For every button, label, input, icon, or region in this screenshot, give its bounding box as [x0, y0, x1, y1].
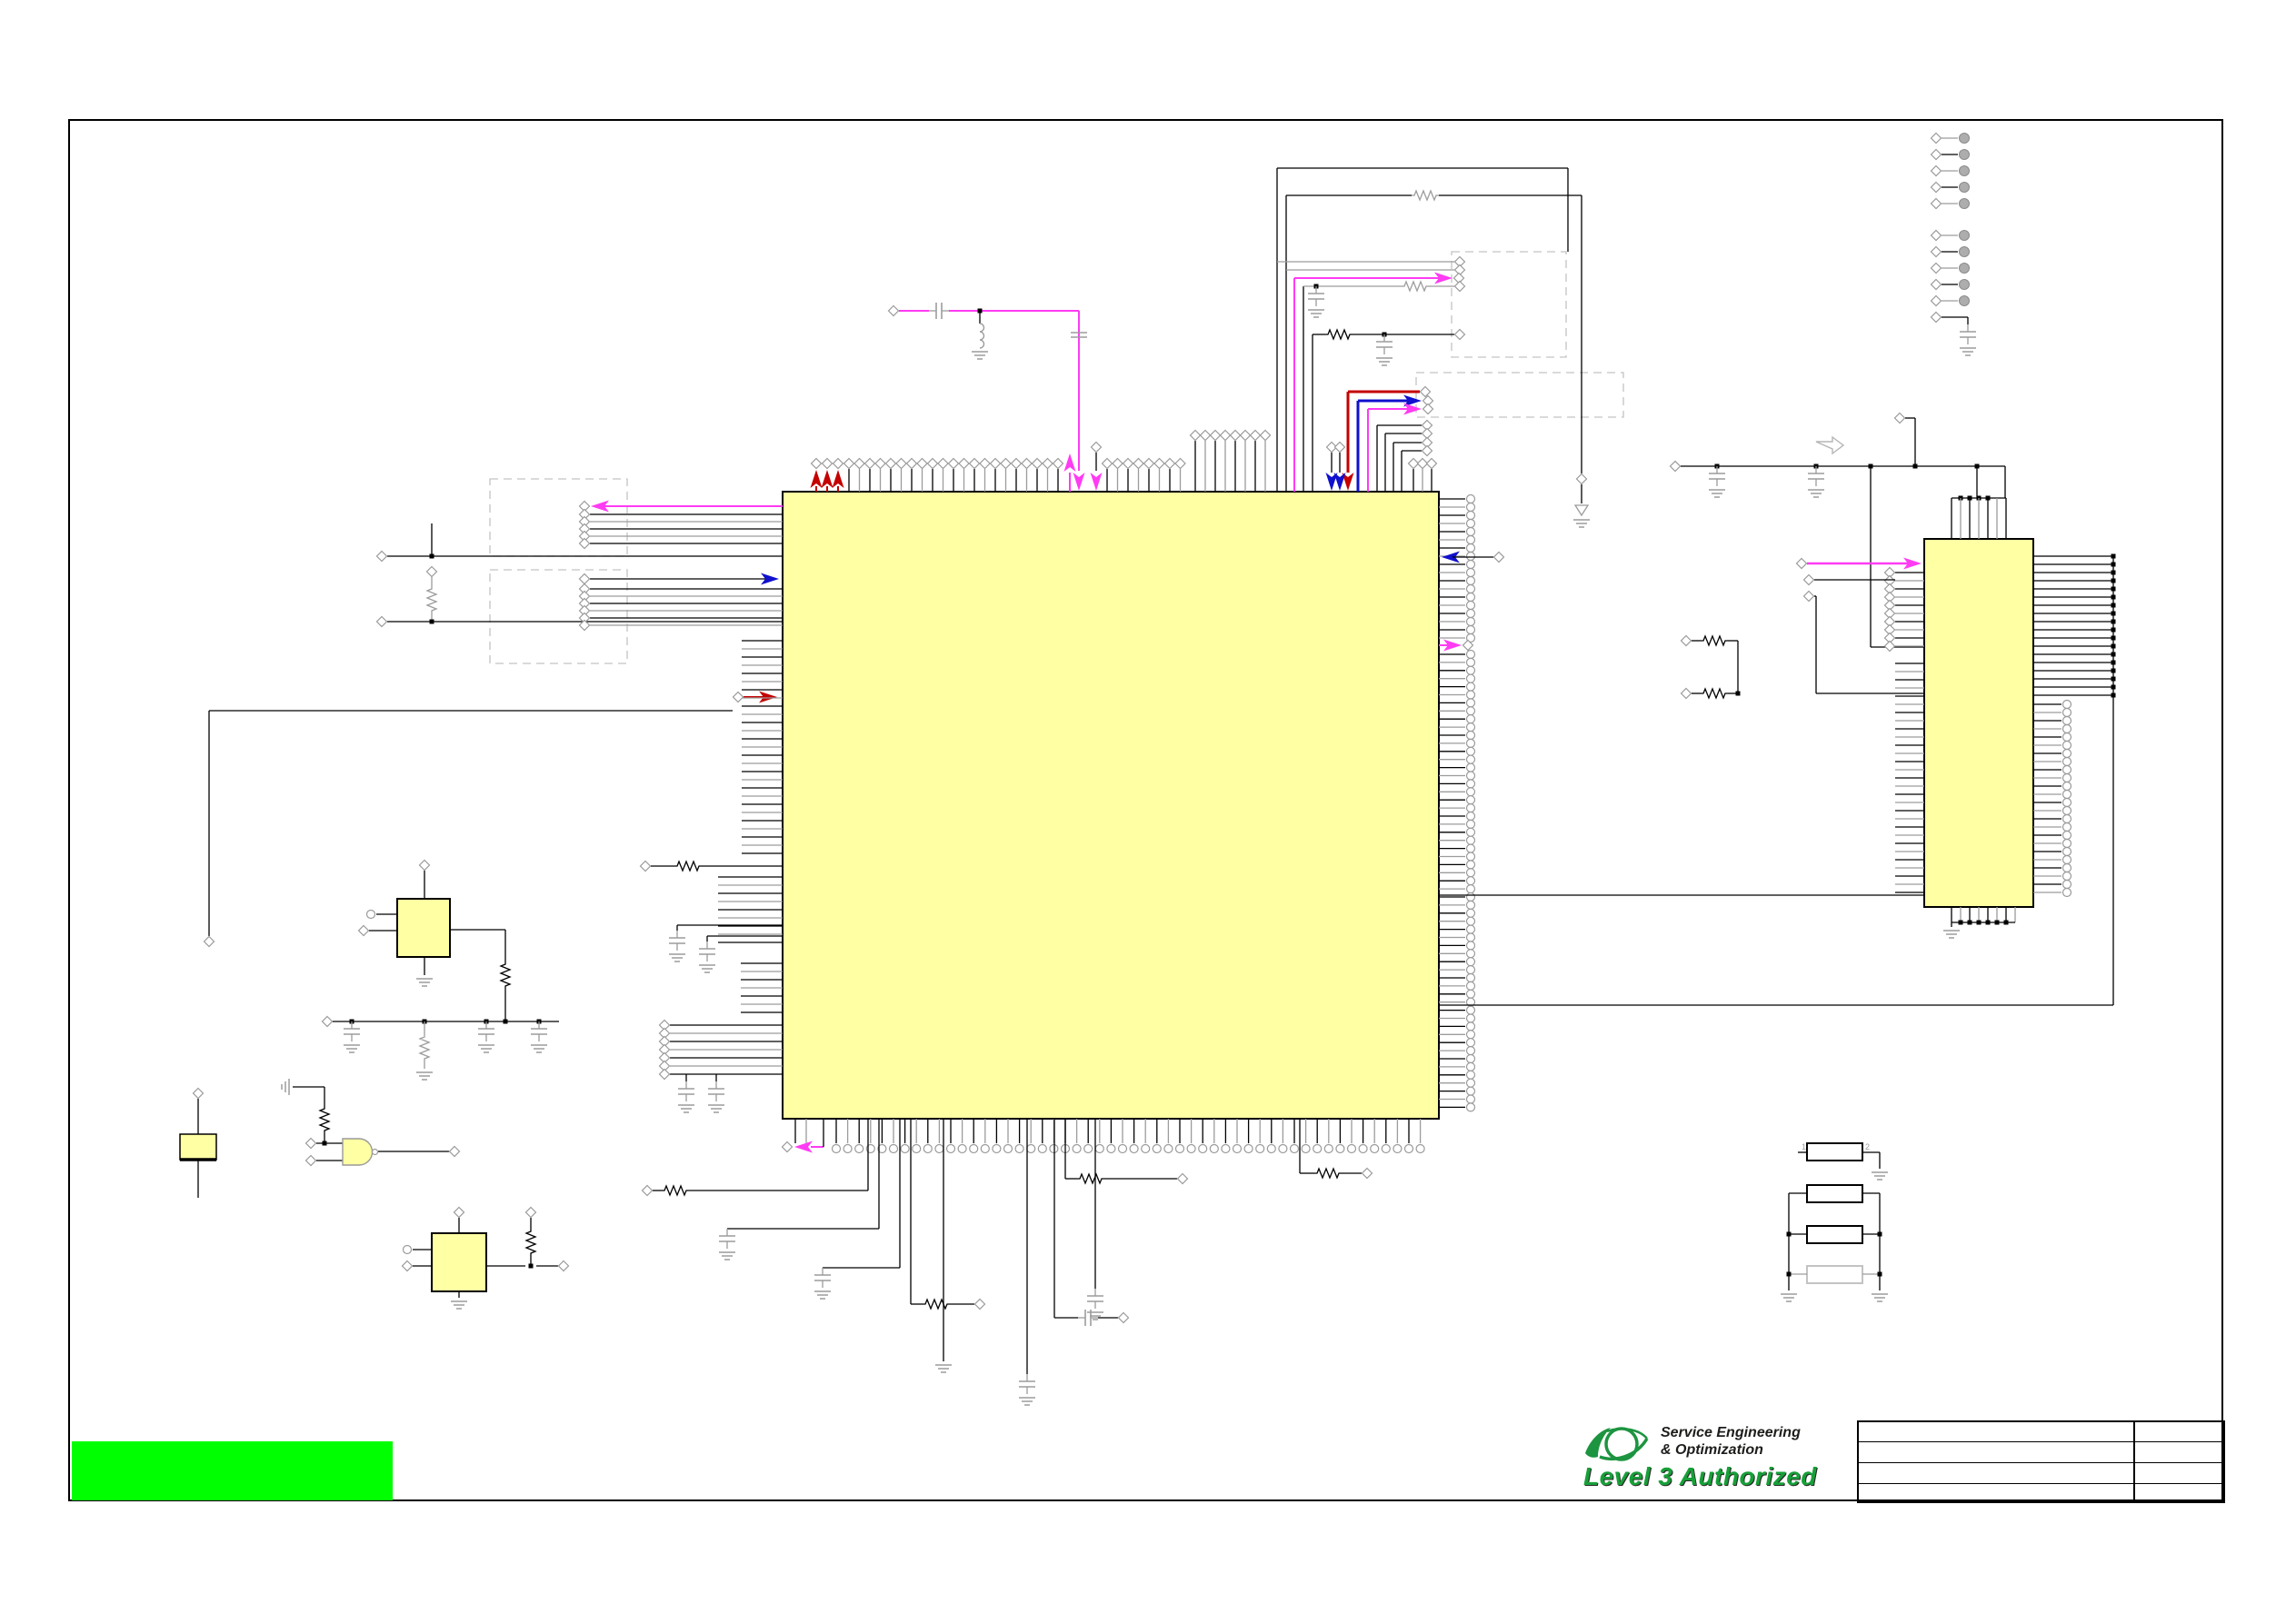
port-diamond-icon — [377, 552, 387, 562]
dashed-group-box — [490, 570, 627, 663]
ground-symbol — [478, 1045, 494, 1052]
junction-dot — [1913, 464, 1918, 469]
regulator-block — [432, 1233, 486, 1291]
port-diamond-icon — [205, 937, 215, 947]
terminal-circle-icon — [2063, 864, 2071, 872]
terminal-circle-icon — [1467, 699, 1475, 707]
terminal-circle-icon — [1164, 1145, 1173, 1153]
terminal-circle-icon — [1004, 1145, 1013, 1153]
oscillator-block — [397, 899, 450, 957]
terminal-circle-icon — [1467, 796, 1475, 804]
test-pad — [1960, 150, 1970, 160]
test-pad — [1960, 264, 1970, 274]
terminal-circle-icon — [947, 1145, 955, 1153]
junction-dot — [2111, 636, 2116, 641]
port-diamond-icon — [1494, 553, 1504, 563]
port-diamond-icon — [660, 1070, 670, 1080]
junction-dot — [2111, 571, 2116, 575]
terminal-circle-icon — [1359, 1145, 1367, 1153]
port-diamond-icon — [1043, 459, 1053, 469]
port-diamond-icon — [1201, 431, 1211, 441]
ground-symbol — [1872, 1172, 1888, 1180]
ground-symbol — [1087, 1312, 1103, 1320]
pin-row — [1191, 431, 1271, 493]
terminal-circle-icon — [901, 1145, 909, 1153]
terminal-circle-icon — [1187, 1145, 1195, 1153]
signal-arrow-icon — [1064, 453, 1076, 472]
terminal-circle-icon — [958, 1145, 966, 1153]
terminal-circle-icon — [2063, 717, 2071, 725]
ground-symbol — [1019, 1398, 1035, 1405]
signal-arrow-icon — [811, 470, 823, 488]
right-ic-block — [1924, 539, 2033, 907]
terminal-circle-icon — [1393, 1145, 1402, 1153]
terminal-circle-icon — [1467, 553, 1475, 561]
terminal-circle-icon — [1467, 618, 1475, 626]
terminal-circle-icon — [1467, 602, 1475, 610]
terminal-circle-icon — [2063, 791, 2071, 799]
test-pad — [1960, 199, 1970, 209]
terminal-circle-icon — [1467, 658, 1475, 666]
capacitor — [669, 931, 685, 951]
junction-dot — [1878, 1272, 1882, 1277]
terminal-circle-icon — [1467, 561, 1475, 569]
port-diamond-icon — [1261, 431, 1271, 441]
terminal-circle-icon — [1467, 1055, 1475, 1063]
terminal-circle-icon — [1467, 836, 1475, 844]
terminal-circle-icon — [1467, 569, 1475, 577]
title-block-row-divider — [1859, 1441, 2223, 1442]
resistor — [1325, 330, 1353, 339]
terminal-circle-icon — [1467, 1031, 1475, 1039]
terminal-circle-icon — [1084, 1145, 1093, 1153]
ground-symbol — [416, 1072, 433, 1080]
terminal-circle-icon — [833, 1145, 841, 1153]
port-diamond-icon — [1123, 459, 1133, 469]
port-diamond-icon — [1175, 459, 1185, 469]
resistor — [1314, 1169, 1342, 1178]
capacitor — [708, 1081, 724, 1101]
terminal-circle-icon — [2063, 872, 2071, 881]
diode-symbol — [1575, 505, 1588, 515]
terminal-circle-icon — [2063, 701, 2071, 709]
terminal-circle-icon — [2063, 840, 2071, 848]
terminal-circle-icon — [1107, 1145, 1115, 1153]
pin-row — [580, 510, 784, 549]
terminal-circle-icon — [2063, 799, 2071, 807]
resistor — [674, 862, 702, 871]
resistor — [923, 1300, 950, 1309]
terminal-circle-icon — [2063, 782, 2071, 791]
terminal-circle-icon — [2063, 889, 2071, 897]
ground-symbol — [719, 1252, 735, 1260]
pin-row — [580, 584, 784, 631]
port-diamond-icon — [1932, 199, 1942, 209]
terminal-circle-icon — [2063, 725, 2071, 733]
junction-dot — [2111, 628, 2116, 633]
pack-resistor — [1807, 1143, 1862, 1161]
terminal-circle-icon — [1467, 593, 1475, 602]
port-diamond-icon — [1133, 459, 1143, 469]
port-diamond-icon — [1455, 282, 1465, 292]
port-diamond-icon — [1144, 459, 1154, 469]
port-diamond-icon — [1455, 330, 1465, 340]
terminal-circle-icon — [993, 1145, 1001, 1153]
test-pad — [1960, 134, 1970, 144]
terminal-circle-icon — [1467, 674, 1475, 682]
port-diamond-icon — [1932, 280, 1942, 290]
capacitor — [1376, 334, 1393, 354]
capacitor — [1709, 466, 1725, 486]
port-diamond-icon — [1251, 431, 1261, 441]
junction-dot — [1995, 921, 2000, 925]
port-diamond-icon — [907, 459, 917, 469]
terminal-circle-icon — [1467, 723, 1475, 732]
terminal-circle-icon — [1313, 1145, 1322, 1153]
terminal-circle-icon — [2063, 807, 2071, 815]
terminal-circle-icon — [1073, 1145, 1081, 1153]
signal-arrow-icon — [1091, 473, 1103, 491]
port-diamond-icon — [1421, 387, 1431, 397]
port-diamond-icon — [1231, 431, 1241, 441]
terminal-circle-icon — [1467, 893, 1475, 902]
capacitor — [1808, 466, 1824, 486]
pin-row — [718, 877, 783, 942]
terminal-circle-icon — [1467, 512, 1475, 520]
ground-symbol — [1308, 310, 1324, 317]
terminal-circle-icon — [1467, 1006, 1475, 1014]
terminal-circle-icon — [1467, 804, 1475, 812]
port-diamond-icon — [643, 1186, 653, 1196]
port-diamond-icon — [1427, 459, 1437, 469]
port-diamond-icon — [823, 459, 833, 469]
terminal-circle-icon — [1130, 1145, 1138, 1153]
junction-dot — [2111, 603, 2116, 608]
pad-row — [1932, 134, 1970, 209]
pin-row — [1409, 459, 1437, 493]
terminal-circle-icon — [1279, 1145, 1287, 1153]
junction-dot — [2111, 587, 2116, 592]
terminal-circle-icon — [367, 911, 375, 919]
capacitor — [1960, 324, 1976, 344]
port-diamond-icon — [1682, 689, 1692, 699]
crystal-block — [180, 1134, 216, 1160]
terminal-circle-icon — [1467, 877, 1475, 885]
terminal-circle-icon — [1467, 772, 1475, 780]
terminal-circle-icon — [1244, 1145, 1253, 1153]
capacitor — [678, 1081, 694, 1101]
junction-dot — [1986, 921, 1991, 925]
port-diamond-icon — [526, 1208, 536, 1218]
port-diamond-icon — [1191, 431, 1201, 441]
bus-row — [2033, 554, 2116, 698]
resistor — [1077, 1174, 1104, 1183]
port-diamond-icon — [949, 459, 959, 469]
port-diamond-icon — [928, 459, 938, 469]
port-diamond-icon — [1113, 459, 1123, 469]
terminal-circle-icon — [981, 1145, 989, 1153]
terminal-circle-icon — [1467, 974, 1475, 982]
inductor-coil — [980, 324, 984, 348]
port-diamond-icon — [323, 1017, 333, 1027]
junction-dot — [2111, 554, 2116, 559]
port-diamond-icon — [377, 617, 387, 627]
terminal-circle-icon — [1467, 520, 1475, 528]
terminal-circle-icon — [1467, 1014, 1475, 1022]
terminal-circle-icon — [1336, 1145, 1344, 1153]
port-diamond-icon — [886, 459, 896, 469]
port-diamond-icon — [1178, 1174, 1188, 1184]
resistor — [1701, 636, 1728, 645]
terminal-circle-icon — [1467, 852, 1475, 861]
terminal-circle-icon — [1467, 707, 1475, 715]
junction-dot — [2111, 685, 2116, 690]
terminal-circle-icon — [1467, 933, 1475, 942]
terminal-circle-icon — [1467, 950, 1475, 958]
capacitor — [1308, 286, 1324, 306]
logo-line3: Level 3 Authorized — [1583, 1462, 1817, 1491]
junction-dot — [1878, 1232, 1882, 1237]
test-pad — [1960, 231, 1970, 241]
port-diamond-icon — [1797, 559, 1807, 569]
pin-row — [1439, 651, 1475, 1111]
terminal-circle-icon — [1467, 861, 1475, 869]
junction-dot — [2111, 620, 2116, 624]
terminal-circle-icon — [2063, 709, 2071, 717]
port-diamond-icon — [917, 459, 927, 469]
terminal-circle-icon — [2063, 733, 2071, 742]
ground-symbol — [699, 965, 715, 972]
junction-dot — [2004, 921, 2009, 925]
pin-row — [1439, 495, 1475, 643]
junction-dot — [2111, 653, 2116, 657]
junction-dot — [1968, 921, 1972, 925]
terminal-circle-icon — [1038, 1145, 1046, 1153]
ground-symbol — [416, 979, 433, 986]
port-diamond-icon — [1335, 443, 1345, 453]
terminal-circle-icon — [1467, 844, 1475, 852]
central-ic-block — [783, 492, 1439, 1119]
capacitor — [1019, 1374, 1035, 1394]
port-diamond-icon — [1804, 575, 1814, 585]
capacitor — [814, 1268, 831, 1288]
nand-gate — [343, 1139, 378, 1165]
junction-dot — [1787, 1272, 1792, 1277]
test-pad — [1960, 247, 1970, 257]
resistor — [420, 1034, 429, 1061]
terminal-circle-icon — [1467, 747, 1475, 755]
logo-line2: & Optimization — [1661, 1442, 1763, 1459]
resistor — [501, 961, 510, 989]
terminal-circle-icon — [2063, 832, 2071, 840]
title-block — [1857, 1420, 2225, 1503]
port-diamond-icon — [306, 1156, 316, 1166]
port-diamond-icon — [980, 459, 990, 469]
terminal-circle-icon — [1467, 610, 1475, 618]
port-diamond-icon — [1363, 1169, 1373, 1179]
logo-line1: Service Engineering — [1661, 1425, 1801, 1441]
terminal-circle-icon — [1153, 1145, 1161, 1153]
port-diamond-icon — [420, 861, 430, 871]
port-diamond-icon — [403, 1261, 413, 1271]
terminal-circle-icon — [1291, 1145, 1299, 1153]
port-diamond-icon — [970, 459, 980, 469]
port-diamond-icon — [580, 574, 590, 584]
terminal-circle-icon — [2063, 774, 2071, 782]
signal-arrow-icon — [1334, 473, 1346, 491]
terminal-circle-icon — [1348, 1145, 1356, 1153]
port-diamond-icon — [1053, 459, 1063, 469]
port-diamond-icon — [812, 459, 822, 469]
port-diamond-icon — [938, 459, 948, 469]
terminal-circle-icon — [1467, 503, 1475, 512]
terminal-circle-icon — [2063, 848, 2071, 856]
signal-arrow-icon — [1073, 473, 1085, 491]
terminal-circle-icon — [1467, 1047, 1475, 1055]
ground-symbol — [972, 352, 988, 359]
junction-dot — [1787, 1232, 1792, 1237]
port-diamond-icon — [959, 459, 969, 469]
terminal-circle-icon — [1222, 1145, 1230, 1153]
ground-symbol — [1960, 348, 1976, 355]
terminal-circle-icon — [1256, 1145, 1264, 1153]
port-diamond-icon — [450, 1147, 460, 1157]
port-diamond-icon — [1671, 462, 1681, 472]
junction-dot — [2111, 661, 2116, 665]
ground-symbol — [814, 1291, 831, 1299]
port-diamond-icon — [1423, 404, 1433, 414]
port-diamond-icon — [875, 459, 885, 469]
capacitor — [531, 1021, 547, 1041]
capacitor — [1087, 1289, 1103, 1309]
terminal-circle-icon — [1142, 1145, 1150, 1153]
junction-dot — [1959, 921, 1963, 925]
junction-dot — [2111, 579, 2116, 583]
capacitor — [344, 1021, 360, 1041]
port-diamond-icon — [1932, 166, 1942, 176]
terminal-circle-icon — [1467, 755, 1475, 763]
port-diamond-icon — [1682, 636, 1692, 646]
test-pad — [1960, 166, 1970, 176]
capacitor — [478, 1021, 494, 1041]
terminal-circle-icon — [935, 1145, 943, 1153]
ground-symbol — [1872, 1294, 1888, 1301]
seo-logo: Service Engineering & Optimization Level… — [1583, 1422, 1883, 1506]
port-diamond-icon — [359, 926, 369, 936]
terminal-circle-icon — [1467, 1095, 1475, 1103]
terminal-circle-icon — [970, 1145, 978, 1153]
pin-row — [1952, 907, 2015, 922]
ground-symbol — [1808, 490, 1824, 497]
port-diamond-icon — [454, 1208, 464, 1218]
terminal-circle-icon — [1467, 942, 1475, 950]
schematic-page: 12 Service Engineering & Optimization Le… — [0, 0, 2296, 1624]
terminal-circle-icon — [1467, 1087, 1475, 1095]
ground-symbol — [678, 1105, 694, 1112]
ground-symbol — [708, 1105, 724, 1112]
port-diamond-icon — [889, 306, 899, 316]
terminal-circle-icon — [1467, 577, 1475, 585]
terminal-circle-icon — [2063, 815, 2071, 823]
resistor — [1412, 191, 1439, 200]
terminal-circle-icon — [2063, 766, 2071, 774]
terminal-circle-icon — [1467, 626, 1475, 634]
schematic-svg: 12 — [0, 0, 2296, 1624]
terminal-circle-icon — [1467, 966, 1475, 974]
terminal-circle-icon — [1015, 1145, 1023, 1153]
seo-globe-icon — [1583, 1422, 1654, 1468]
port-diamond-icon — [1932, 313, 1942, 323]
signal-arrow-icon — [822, 470, 834, 488]
ground-symbol — [344, 1045, 360, 1052]
terminal-circle-icon — [1467, 990, 1475, 998]
port-diamond-icon — [1932, 264, 1942, 274]
pack-resistor — [1807, 1185, 1862, 1202]
port-diamond-icon — [1241, 431, 1251, 441]
ground-symbol — [282, 1079, 289, 1095]
port-diamond-icon — [1001, 459, 1011, 469]
terminal-circle-icon — [1467, 812, 1475, 821]
port-diamond-icon — [427, 567, 437, 577]
resistor — [320, 1106, 329, 1133]
pin-row — [844, 459, 1063, 493]
terminal-circle-icon — [923, 1145, 932, 1153]
terminal-circle-icon — [2063, 823, 2071, 832]
terminal-circle-icon — [1095, 1145, 1103, 1153]
port-diamond-icon — [1885, 642, 1895, 652]
terminal-circle-icon — [1467, 495, 1475, 503]
pin-row — [741, 963, 783, 1012]
resistor — [427, 586, 436, 613]
pin-row — [660, 1021, 784, 1080]
terminal-circle-icon — [1233, 1145, 1242, 1153]
port-diamond-icon — [1932, 231, 1942, 241]
terminal-circle-icon — [1467, 828, 1475, 836]
port-diamond-icon — [559, 1261, 569, 1271]
terminal-circle-icon — [1467, 1071, 1475, 1079]
resistor — [1701, 689, 1728, 698]
signal-arrow-icon — [833, 470, 844, 488]
port-diamond-icon — [1932, 134, 1942, 144]
resistor — [662, 1186, 689, 1195]
terminal-circle-icon — [1371, 1145, 1379, 1153]
terminal-circle-icon — [844, 1145, 852, 1153]
terminal-circle-icon — [1467, 1079, 1475, 1087]
terminal-circle-icon — [1467, 780, 1475, 788]
port-diamond-icon — [306, 1139, 316, 1149]
terminal-circle-icon — [1467, 1103, 1475, 1111]
terminal-circle-icon — [404, 1246, 412, 1254]
port-diamond-icon — [1932, 247, 1942, 257]
test-pad — [1960, 280, 1970, 290]
ground-symbol — [1781, 1294, 1797, 1301]
dashed-group-box — [1452, 252, 1566, 357]
pin-row — [1103, 459, 1186, 493]
pack-resistor — [1807, 1226, 1862, 1243]
terminal-circle-icon — [1467, 732, 1475, 740]
terminal-circle-icon — [1467, 1039, 1475, 1047]
dashed-group-box — [1416, 373, 1623, 417]
port-diamond-icon — [975, 1300, 985, 1310]
port-diamond-icon — [1033, 459, 1043, 469]
pin-number-label: 1 — [1802, 1142, 1806, 1151]
ground-symbol — [531, 1045, 547, 1052]
port-diamond-icon — [194, 1089, 204, 1099]
terminal-circle-icon — [1467, 917, 1475, 925]
pad-row — [1932, 231, 1970, 306]
terminal-circle-icon — [1210, 1145, 1218, 1153]
port-diamond-icon — [1577, 474, 1587, 484]
